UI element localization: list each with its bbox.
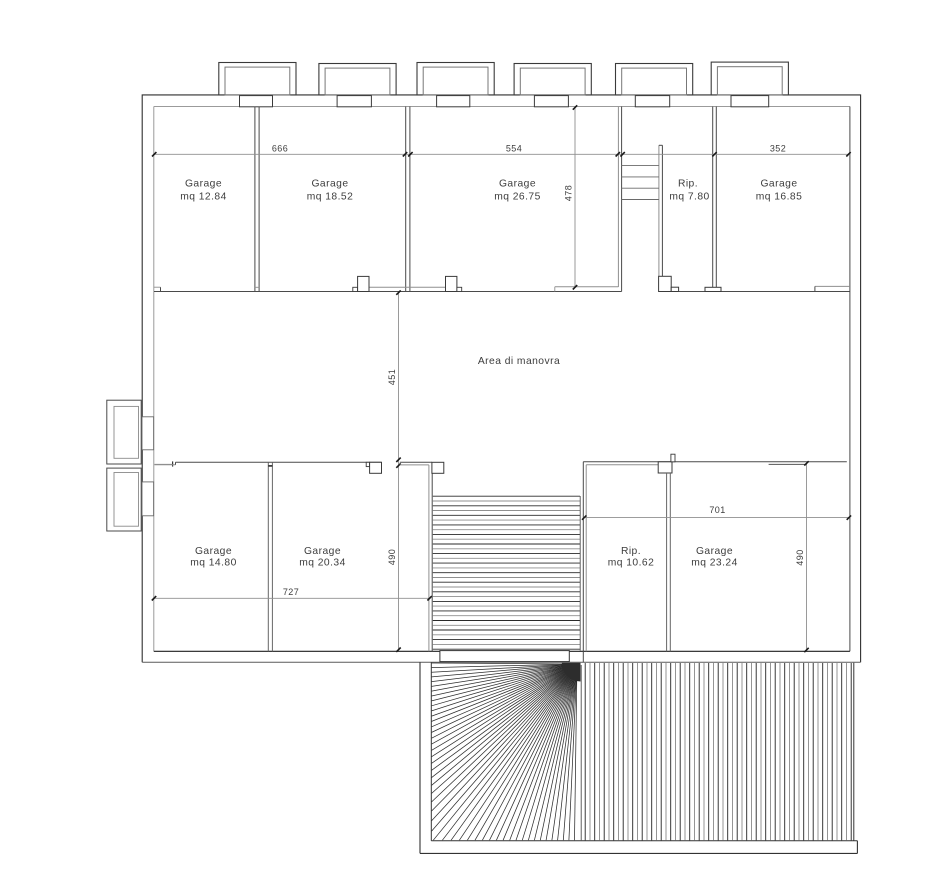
svg-text:352: 352 [770,144,786,154]
svg-text:Rip.: Rip. [678,179,698,190]
svg-text:490: 490 [387,549,397,565]
svg-text:Garage: Garage [304,546,341,557]
svg-text:mq 23.24: mq 23.24 [691,558,738,569]
svg-text:mq 18.52: mq 18.52 [307,191,354,202]
svg-text:Rip.: Rip. [621,546,641,557]
svg-text:mq 26.75: mq 26.75 [494,191,541,202]
svg-text:Garage: Garage [696,546,733,557]
svg-text:666: 666 [272,144,288,154]
svg-text:701: 701 [709,505,725,515]
svg-text:mq 12.84: mq 12.84 [180,191,227,202]
svg-text:mq 16.85: mq 16.85 [756,191,803,202]
svg-text:478: 478 [564,185,574,201]
svg-text:490: 490 [795,549,805,565]
svg-text:451: 451 [387,369,397,385]
svg-text:mq 7.80: mq 7.80 [669,191,709,202]
svg-text:Garage: Garage [185,179,222,190]
svg-text:mq 20.34: mq 20.34 [299,558,346,569]
svg-text:mq 14.80: mq 14.80 [190,558,237,569]
svg-text:Garage: Garage [195,546,232,557]
svg-text:Garage: Garage [499,179,536,190]
svg-text:554: 554 [506,144,522,154]
svg-text:Area di manovra: Area di manovra [478,356,560,367]
svg-text:Garage: Garage [311,179,348,190]
svg-text:727: 727 [283,587,299,597]
svg-text:Garage: Garage [760,179,797,190]
svg-text:mq 10.62: mq 10.62 [608,558,655,569]
